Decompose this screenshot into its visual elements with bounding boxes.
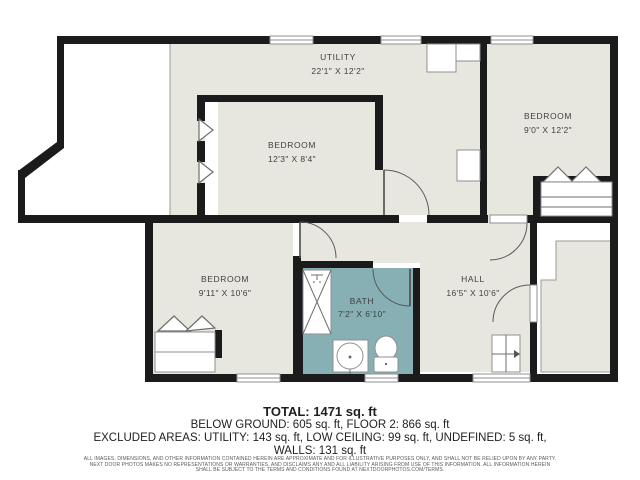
closet-floor	[541, 241, 612, 372]
room-dims: 9'11" X 10'6"	[199, 288, 252, 298]
window-icon	[381, 36, 421, 44]
room-label: BEDROOM	[524, 111, 572, 121]
area-summary: TOTAL: 1471 sq. ft BELOW GROUND: 605 sq.…	[0, 404, 640, 458]
excluded-areas: EXCLUDED AREAS: UTILITY: 143 sq. ft, LOW…	[0, 432, 640, 445]
room-dims: 9'0" X 12'2"	[524, 125, 572, 135]
window-icon	[365, 374, 398, 382]
disclaimer-line: SHALL BE SUBJECT TO THE TERMS AND CONDIT…	[0, 468, 640, 474]
toilet-icon	[374, 336, 398, 372]
room-dims: 16'5" X 10'6"	[446, 288, 499, 298]
sink-icon	[333, 340, 368, 374]
low-ceiling-strip	[205, 102, 218, 215]
room-label: BEDROOM	[201, 274, 249, 284]
window-icon	[270, 36, 313, 44]
room-dims: 12'3" X 8'4"	[268, 154, 316, 164]
total-area: TOTAL: 1471 sq. ft	[0, 404, 640, 419]
disclaimer: ALL IMAGES, DIMENSIONS, AND OTHER INFORM…	[0, 457, 640, 474]
window-icon	[237, 374, 280, 382]
window-icon	[473, 374, 530, 382]
room-label: HALL	[461, 274, 485, 284]
window-icon	[491, 36, 533, 44]
room-label: BATH	[350, 296, 374, 306]
room-label: BEDROOM	[268, 140, 316, 150]
area-breakdown: BELOW GROUND: 605 sq. ft, FLOOR 2: 866 s…	[0, 419, 640, 432]
stairs-hall	[492, 335, 520, 372]
shower-icon	[303, 270, 331, 334]
floor-plan: UTILITY 22'1" X 12'2" BEDROOM 12'3" X 8'…	[0, 0, 640, 404]
room-dims: 7'2" X 6'10"	[338, 309, 386, 319]
room-label: UTILITY	[320, 52, 356, 62]
room-dims: 22'1" X 12'2"	[311, 66, 364, 76]
